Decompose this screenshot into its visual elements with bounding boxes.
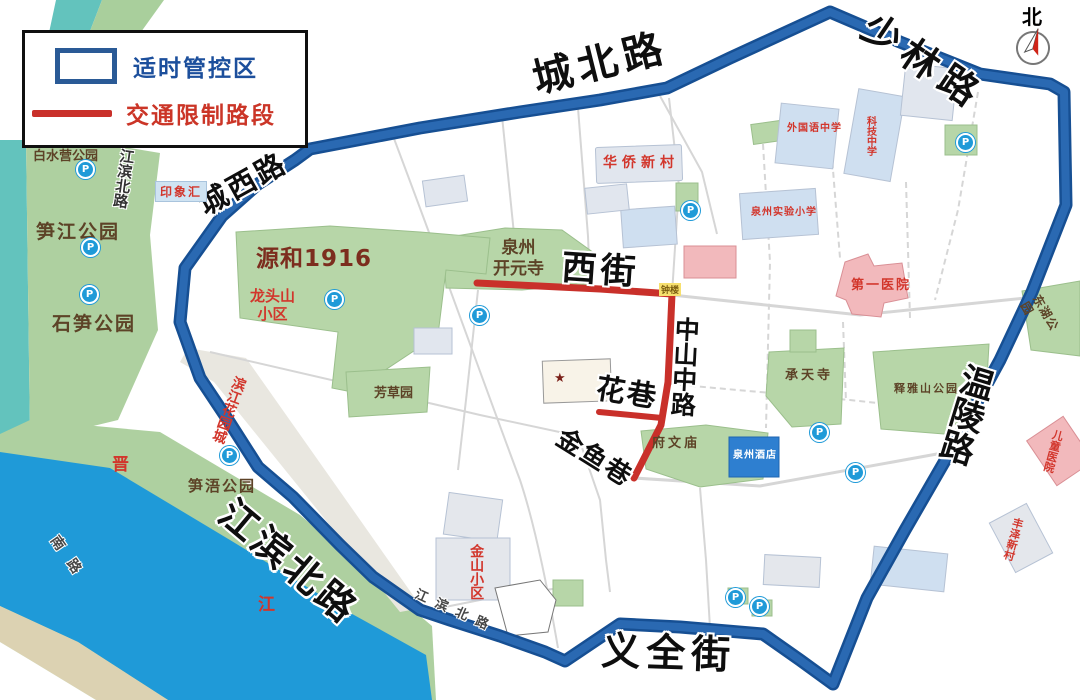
park-label-sunwu: 笋浯公园 — [188, 478, 256, 495]
restricted-road-label: 交通限制路段 — [126, 96, 276, 130]
road-label-yiquan: 义全街 — [600, 630, 736, 680]
river-label-jin: 晋 — [112, 456, 129, 476]
place-label-waiguoyu-school: 外国语中学 — [787, 123, 842, 135]
outlined-block-s — [495, 580, 556, 636]
parking-icon: P — [750, 597, 769, 616]
place-label-shiyan-school: 泉州实验小学 — [751, 207, 817, 219]
parking-icon: P — [76, 160, 95, 179]
road-label-xijie: 西街 — [560, 248, 641, 294]
place-label-yuanhe-1916: 源和1916 — [256, 246, 372, 272]
second-hospital-building — [684, 246, 736, 278]
parking-icon: P — [470, 306, 489, 325]
school-building-sw — [621, 206, 678, 248]
park-label-shiyashan: 释雅山公园 — [894, 383, 959, 396]
parking-icon: P — [81, 238, 100, 257]
place-label-jinshan-xiaoqu: 金山小区 — [468, 544, 484, 600]
parking-icon: P — [726, 588, 745, 607]
place-label-huaqiao-xincun: 华侨新村 — [603, 155, 679, 171]
river-label-jiang: 江 — [258, 596, 275, 616]
place-label-longtoushan: 龙头山 小区 — [250, 287, 295, 323]
river-left-edge — [0, 140, 30, 438]
building-w1 — [414, 328, 452, 354]
park-label-fangcao: 芳草园 — [374, 387, 413, 402]
parking-icon: P — [220, 446, 239, 465]
park-label-chengtian-temple: 承天寺 — [785, 369, 833, 384]
park-label-fuwenmiao: 府文庙 — [652, 437, 700, 452]
park-label-sunjiang: 笋江公园 — [36, 222, 120, 244]
parking-icon: P — [810, 423, 829, 442]
traffic-control-map: 城北路 少林路 城西路 江滨北路 温陵路 义全街 西街 中山中路 花巷 金鱼巷 … — [0, 0, 1080, 700]
waiguoyu-school-building — [775, 103, 839, 169]
building-se2 — [763, 555, 820, 588]
parking-icon: P — [846, 463, 865, 482]
place-label-zhonglou: 钟楼 — [659, 283, 681, 296]
legend: 适时管控区 交通限制路段 — [22, 30, 308, 148]
place-label-keji-school: 科技中学 — [864, 116, 876, 156]
control-zone-swatch-icon — [55, 48, 117, 84]
place-label-yinxianghui: 印象汇 — [155, 181, 207, 202]
legend-row-control-zone: 适时管控区 — [25, 48, 305, 84]
park-label-shisun: 石笋公园 — [52, 314, 136, 336]
chengtian-temple-area — [766, 348, 844, 427]
building-n1 — [585, 184, 629, 214]
place-label-quanzhou-hotel: 泉州酒店 — [733, 450, 777, 462]
theater-star-icon: ★ — [554, 372, 566, 387]
legend-row-restricted: 交通限制路段 — [25, 96, 305, 130]
place-label-diyi-hospital: 第一医院 — [851, 279, 911, 294]
compass-north-label: 北 — [1022, 6, 1042, 29]
park-label-kaiyuan-temple: 泉州 开元寺 — [493, 238, 544, 281]
parking-icon: P — [80, 285, 99, 304]
restricted-road-swatch-icon — [32, 110, 112, 117]
parking-icon: P — [956, 133, 975, 152]
building-sw1 — [443, 492, 502, 541]
building-nw1 — [422, 175, 467, 207]
parking-icon: P — [325, 290, 344, 309]
road-label-zhongshan-middle: 中山中路 — [669, 316, 699, 417]
small-green-s3 — [553, 580, 583, 606]
parking-icon: P — [681, 201, 700, 220]
fengze-xincun-building — [989, 503, 1052, 572]
compass-icon — [1013, 25, 1053, 68]
control-zone-label: 适时管控区 — [133, 49, 258, 83]
small-green-center — [790, 330, 816, 352]
